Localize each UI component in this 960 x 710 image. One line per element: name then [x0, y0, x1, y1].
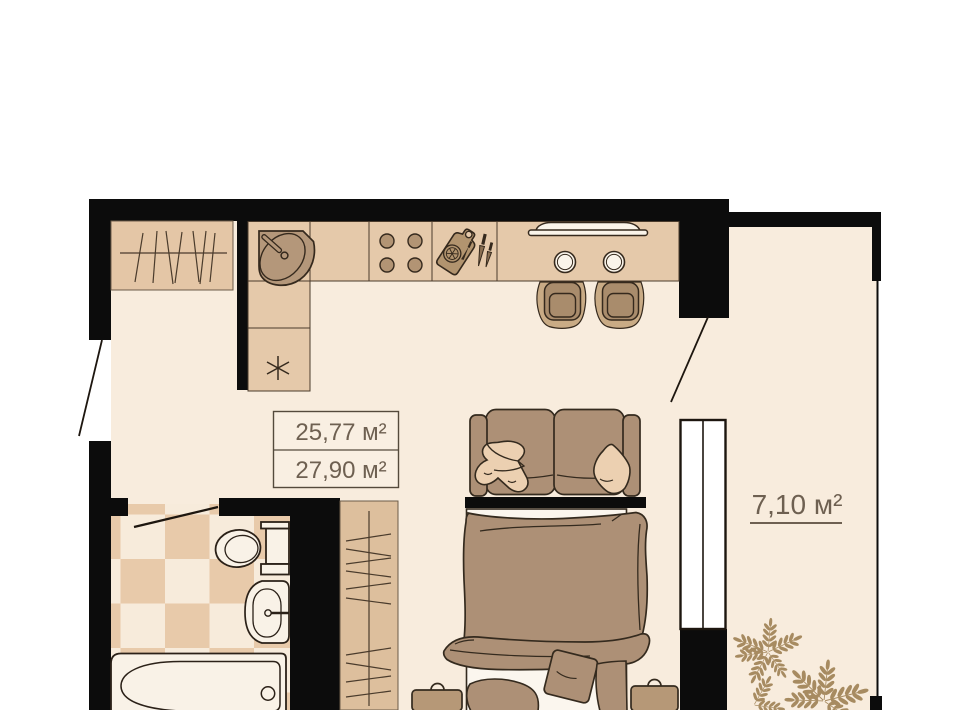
svg-text:27,90 м²: 27,90 м² [295, 457, 386, 484]
svg-text:7,10 м²: 7,10 м² [752, 489, 843, 520]
svg-text:25,77 м²: 25,77 м² [295, 419, 386, 446]
